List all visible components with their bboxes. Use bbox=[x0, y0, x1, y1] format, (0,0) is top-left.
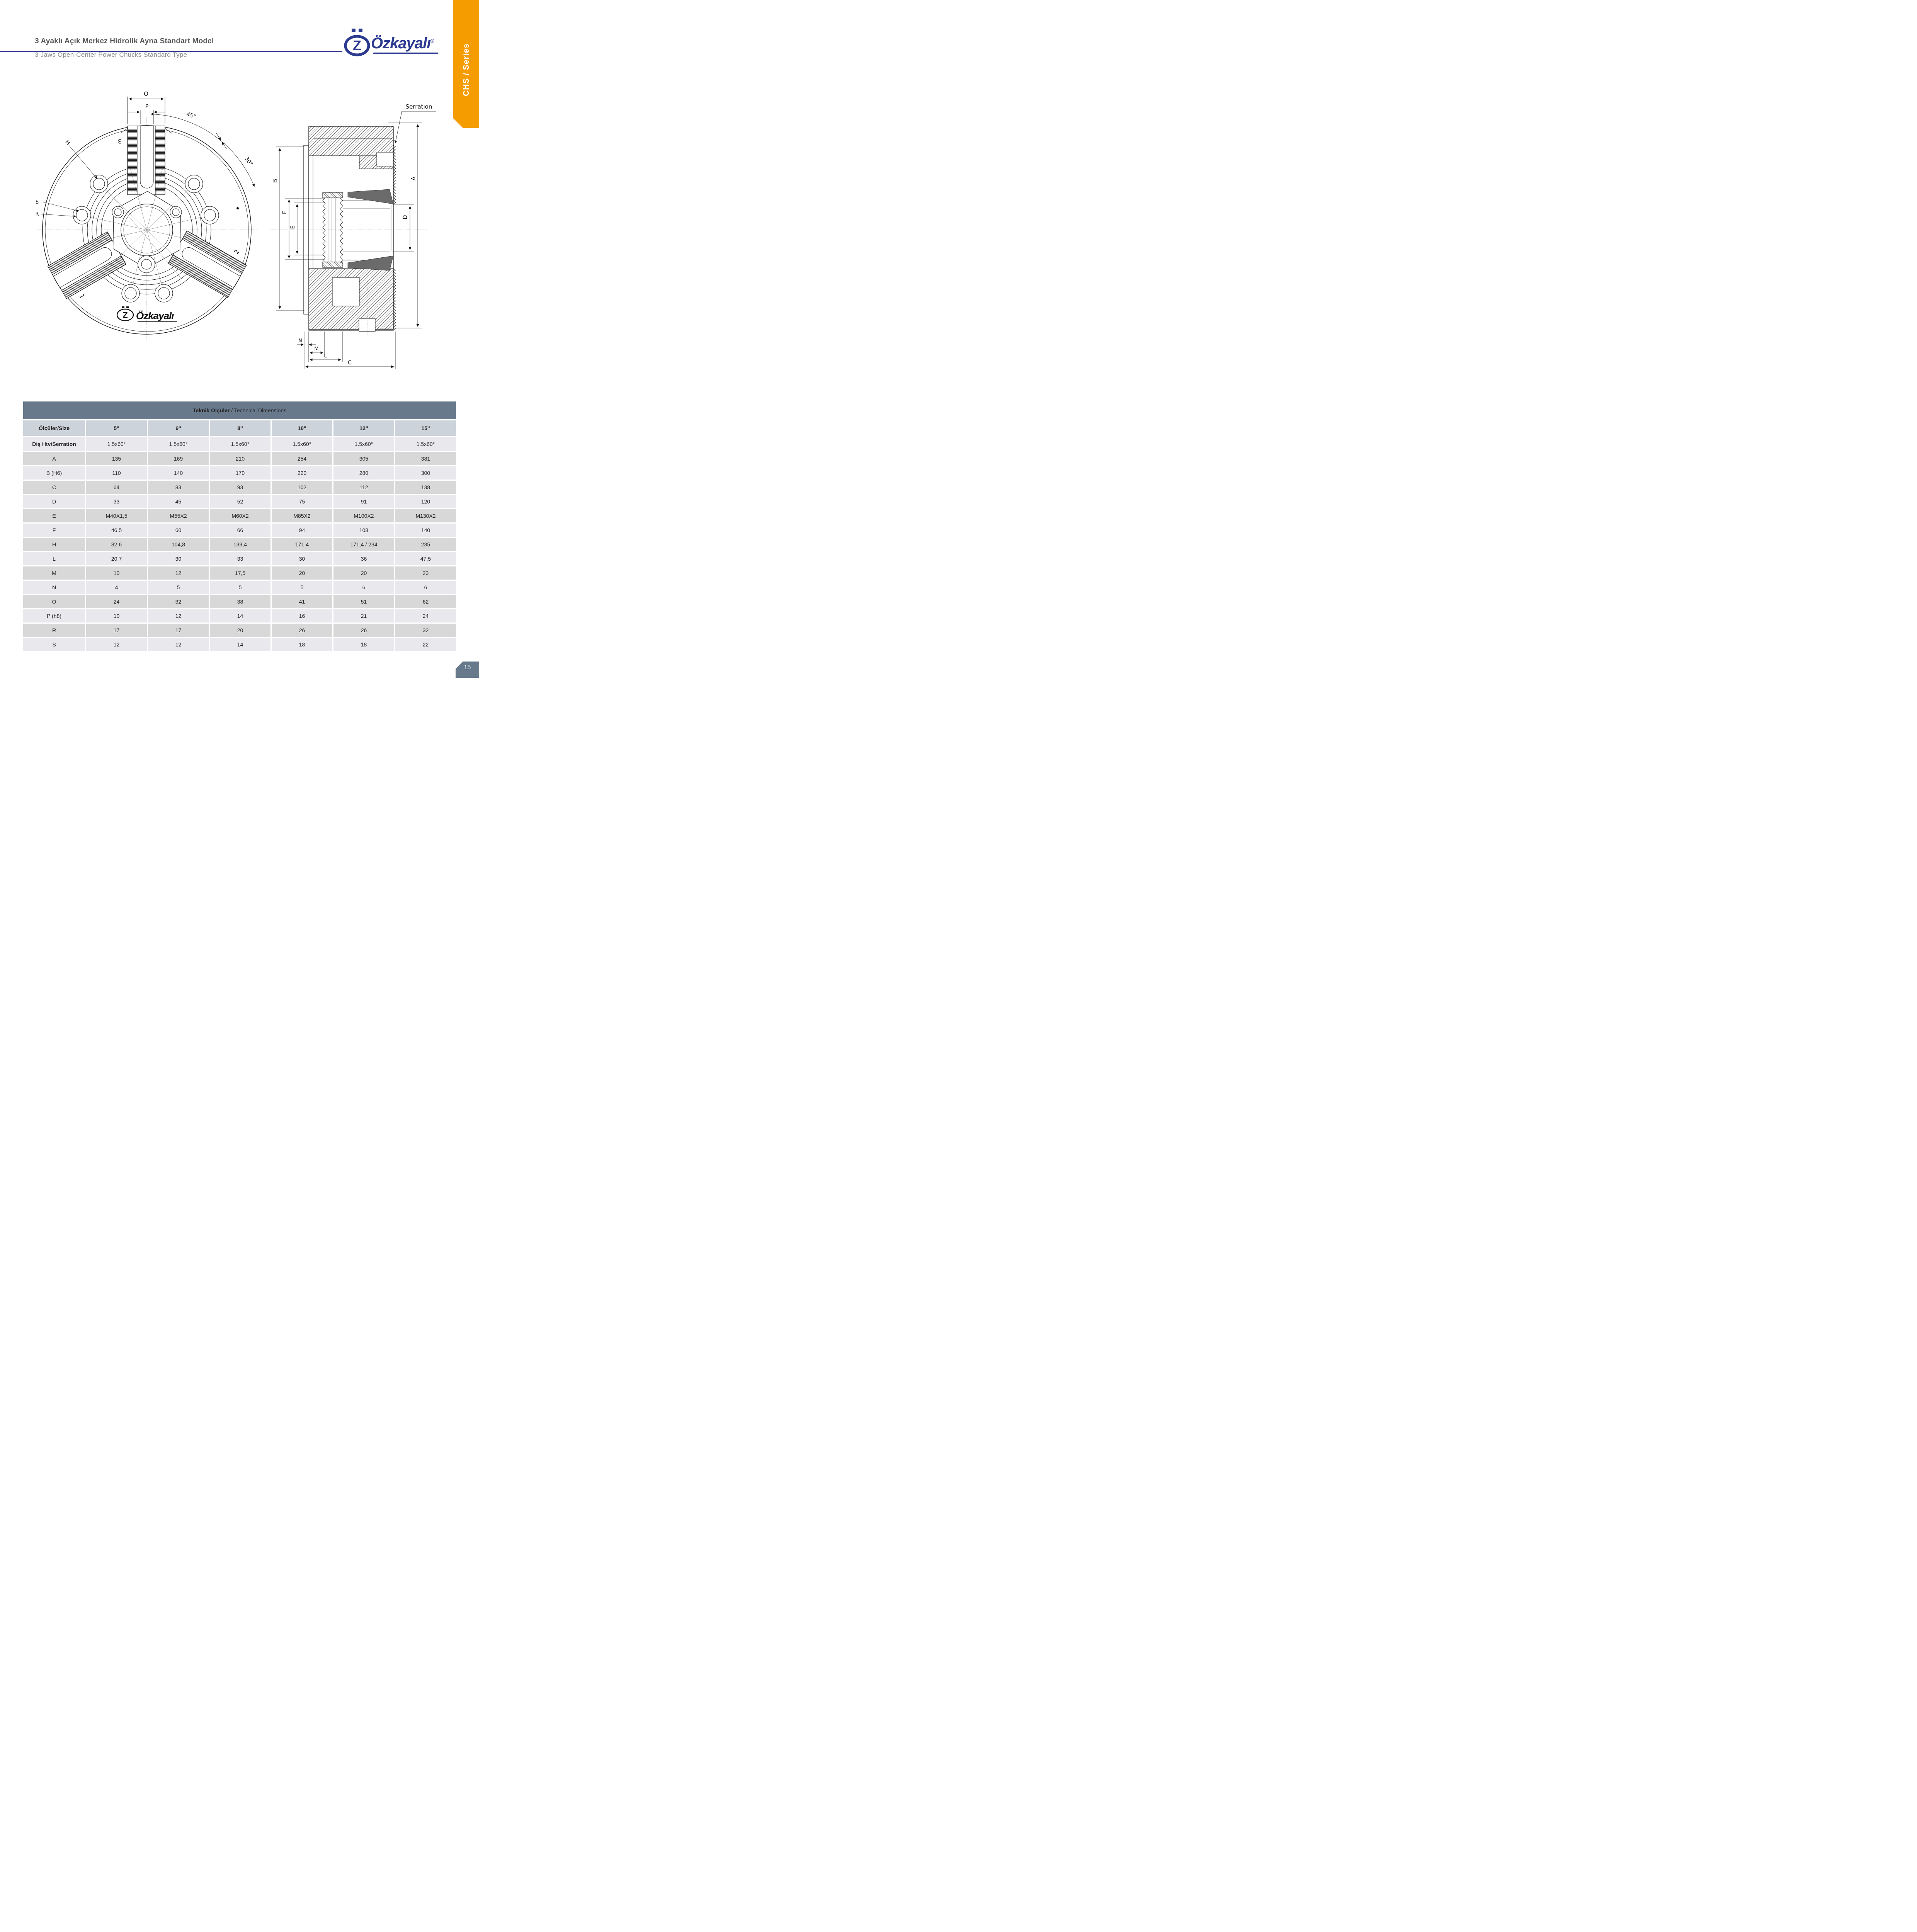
table-cell: 14 bbox=[210, 638, 270, 651]
table-title-row: Teknik Ölçüler / Technical Dimensions bbox=[23, 401, 456, 419]
table-cell: 26 bbox=[272, 624, 332, 637]
table-row: D3345527591120 bbox=[23, 495, 456, 508]
table-cell: 235 bbox=[395, 538, 456, 551]
label-P: P bbox=[145, 104, 148, 110]
table-cell: 210 bbox=[210, 452, 270, 465]
table-cell: 20 bbox=[333, 566, 394, 580]
row-label: Diş Htv/Serration bbox=[23, 437, 85, 451]
label-M: M bbox=[314, 346, 318, 352]
table-cell: 60 bbox=[148, 524, 209, 537]
table-cell: 1.5x60° bbox=[210, 437, 270, 451]
table-cell: 52 bbox=[210, 495, 270, 508]
label-E: E bbox=[290, 226, 296, 229]
size-col-header: 6'' bbox=[148, 420, 209, 436]
table-cell: 170 bbox=[210, 466, 270, 480]
body-top-hatch bbox=[309, 126, 393, 156]
label-45deg: 45° bbox=[185, 111, 197, 120]
table-cell: 102 bbox=[272, 481, 332, 494]
label-F: F bbox=[282, 211, 288, 214]
dimensions-table: Teknik Ölçüler / Technical DimensionsÖlç… bbox=[22, 400, 457, 652]
table-cell: 20 bbox=[272, 566, 332, 580]
piston-pocket bbox=[332, 277, 359, 306]
table-cell: 6 bbox=[395, 581, 456, 594]
table-cell: 93 bbox=[210, 481, 270, 494]
table-row: R171720262632 bbox=[23, 624, 456, 637]
label-D: D bbox=[402, 215, 408, 219]
table-title: Teknik Ölçüler / Technical Dimensions bbox=[23, 401, 456, 419]
table-cell: 104,8 bbox=[148, 538, 209, 551]
table-cell: 140 bbox=[395, 524, 456, 537]
label-O: O bbox=[144, 90, 148, 97]
table-row: EM40X1,5M55X2M60X2M85X2M100X2M130X2 bbox=[23, 509, 456, 522]
table-cell: 24 bbox=[86, 595, 147, 608]
table-cell: 138 bbox=[395, 481, 456, 494]
row-label: C bbox=[23, 481, 85, 494]
table-cell: 254 bbox=[272, 452, 332, 465]
table-cell: 12 bbox=[148, 566, 209, 580]
section-view: Serratıon B F E A D N M L C bbox=[270, 103, 436, 369]
table-cell: 133,4 bbox=[210, 538, 270, 551]
table-cell: 16 bbox=[272, 609, 332, 622]
table-cell: 24 bbox=[395, 609, 456, 622]
jaw-top bbox=[121, 126, 172, 195]
dim-D bbox=[393, 205, 414, 251]
backplate bbox=[304, 145, 309, 314]
table-row: M101217,5202023 bbox=[23, 566, 456, 580]
table-serration-row: Diş Htv/Serration1.5x60°1.5x60°1.5x60°1.… bbox=[23, 437, 456, 451]
table-cell: 38 bbox=[210, 595, 270, 608]
table-cell: 305 bbox=[333, 452, 394, 465]
table-cell: 75 bbox=[272, 495, 332, 508]
table-cell: 5 bbox=[272, 581, 332, 594]
table-cell: 12 bbox=[148, 609, 209, 622]
table-row: P (h8)101214162124 bbox=[23, 609, 456, 622]
table-row: N455566 bbox=[23, 581, 456, 594]
table-cell: 12 bbox=[86, 638, 147, 651]
size-col-header: 15'' bbox=[395, 420, 456, 436]
table-cell: 17 bbox=[86, 624, 147, 637]
table-cell: 64 bbox=[86, 481, 147, 494]
row-label: S bbox=[23, 638, 85, 651]
table-row: C648393102112138 bbox=[23, 481, 456, 494]
label-L: L bbox=[324, 353, 327, 359]
table-cell: 30 bbox=[272, 552, 332, 565]
table-cell: 220 bbox=[272, 466, 332, 480]
table-cell: 45 bbox=[148, 495, 209, 508]
table-cell: 14 bbox=[210, 609, 270, 622]
table-row: S121214181822 bbox=[23, 638, 456, 651]
table-title-rest: / Technical Dimensions bbox=[230, 407, 286, 413]
table-cell: 18 bbox=[272, 638, 332, 651]
table-cell: 120 bbox=[395, 495, 456, 508]
table-cell: 280 bbox=[333, 466, 394, 480]
table-cell: 10 bbox=[86, 566, 147, 580]
size-col-header: 5'' bbox=[86, 420, 147, 436]
table-row: B (H6)110140170220280300 bbox=[23, 466, 456, 480]
table-cell: M55X2 bbox=[148, 509, 209, 522]
table-cell: 17,5 bbox=[210, 566, 270, 580]
table-cell: 381 bbox=[395, 452, 456, 465]
row-label: N bbox=[23, 581, 85, 594]
index-dot bbox=[236, 207, 239, 209]
table-cell: 62 bbox=[395, 595, 456, 608]
table-cell: 51 bbox=[333, 595, 394, 608]
table-cell: 140 bbox=[148, 466, 209, 480]
catalog-page: 3 Ayaklı Açık Merkez Hidrolik Ayna Stand… bbox=[0, 0, 479, 678]
label-C: C bbox=[348, 360, 352, 366]
table-cell: M85X2 bbox=[272, 509, 332, 522]
table-cell: 6 bbox=[333, 581, 394, 594]
table-cell: 33 bbox=[86, 495, 147, 508]
stamp-text: Özkayalı bbox=[136, 310, 174, 321]
table-cell: 5 bbox=[148, 581, 209, 594]
table-cell: M130X2 bbox=[395, 509, 456, 522]
table-cell: 21 bbox=[333, 609, 394, 622]
label-jaw1: 1 bbox=[78, 293, 87, 300]
table-cell: 26 bbox=[333, 624, 394, 637]
table-cell: 83 bbox=[148, 481, 209, 494]
row-label: B (H6) bbox=[23, 466, 85, 480]
table-cell: 5 bbox=[210, 581, 270, 594]
stamp-logo: Z Özkayalı bbox=[117, 306, 177, 322]
size-col-header: 8'' bbox=[210, 420, 270, 436]
table-cell: 135 bbox=[86, 452, 147, 465]
row-label: P (h8) bbox=[23, 609, 85, 622]
table-cell: 12 bbox=[148, 638, 209, 651]
table-cell: M40X1,5 bbox=[86, 509, 147, 522]
label-B: B bbox=[272, 179, 279, 183]
table-cell: 108 bbox=[333, 524, 394, 537]
table-size-row: Ölçüler/Size5''6''8''10''12''15'' bbox=[23, 420, 456, 436]
table-cell: 20,7 bbox=[86, 552, 147, 565]
table-cell: 171,4 / 234 bbox=[333, 538, 394, 551]
table-cell: 41 bbox=[272, 595, 332, 608]
table-row: A135169210254305381 bbox=[23, 452, 456, 465]
row-label: E bbox=[23, 509, 85, 522]
label-N: N bbox=[298, 338, 302, 344]
serration-edge bbox=[393, 145, 396, 330]
row-label: L bbox=[23, 552, 85, 565]
table-row: L20,73033303647,5 bbox=[23, 552, 456, 565]
table-cell: 66 bbox=[210, 524, 270, 537]
row-label: H bbox=[23, 538, 85, 551]
row-label: R bbox=[23, 624, 85, 637]
row-label: O bbox=[23, 595, 85, 608]
table-cell: 32 bbox=[148, 595, 209, 608]
table-cell: 82,6 bbox=[86, 538, 147, 551]
table-cell: 46,5 bbox=[86, 524, 147, 537]
serration-leader bbox=[395, 111, 436, 143]
table-cell: 22 bbox=[395, 638, 456, 651]
table-cell: 300 bbox=[395, 466, 456, 480]
table-cell: 1.5x60° bbox=[148, 437, 209, 451]
row-label: F bbox=[23, 524, 85, 537]
table-cell: 17 bbox=[148, 624, 209, 637]
size-col-header: 12'' bbox=[333, 420, 394, 436]
table-cell: 1.5x60° bbox=[395, 437, 456, 451]
table-cell: 4 bbox=[86, 581, 147, 594]
table-cell: 1.5x60° bbox=[272, 437, 332, 451]
label-30deg: 30° bbox=[243, 156, 254, 167]
table-cell: M60X2 bbox=[210, 509, 270, 522]
table-cell: M100X2 bbox=[333, 509, 394, 522]
label-jaw3: 3 bbox=[118, 138, 122, 145]
table-cell: 1.5x60° bbox=[86, 437, 147, 451]
table-cell: 94 bbox=[272, 524, 332, 537]
table-title-bold: Teknik Ölçüler bbox=[193, 407, 230, 413]
table-cell: 23 bbox=[395, 566, 456, 580]
table-cell: 36 bbox=[333, 552, 394, 565]
table-cell: 91 bbox=[333, 495, 394, 508]
dims-bottom bbox=[297, 332, 395, 369]
label-jaw2: 2 bbox=[233, 248, 241, 255]
page-number: 15 bbox=[464, 664, 471, 671]
table-row: F46,5606694108140 bbox=[23, 524, 456, 537]
stamp-mark-letter: Z bbox=[122, 310, 128, 320]
table-cell: 110 bbox=[86, 466, 147, 480]
leader-lines bbox=[41, 146, 97, 216]
table-cell: 169 bbox=[148, 452, 209, 465]
table-cell: 33 bbox=[210, 552, 270, 565]
table-row: H82,6104,8133,4171,4171,4 / 234235 bbox=[23, 538, 456, 551]
table-cell: 10 bbox=[86, 609, 147, 622]
size-col-header: 10'' bbox=[272, 420, 332, 436]
table-cell: 171,4 bbox=[272, 538, 332, 551]
table-cell: 1.5x60° bbox=[333, 437, 394, 451]
label-A: A bbox=[410, 176, 417, 180]
row-label: D bbox=[23, 495, 85, 508]
row-label: Ölçüler/Size bbox=[23, 420, 85, 436]
row-label: M bbox=[23, 566, 85, 580]
angle-dims bbox=[151, 114, 255, 186]
label-H: H bbox=[64, 139, 71, 146]
table-row: O243238415162 bbox=[23, 595, 456, 608]
key-slot bbox=[377, 152, 393, 166]
table-cell: 18 bbox=[333, 638, 394, 651]
table-cell: 112 bbox=[333, 481, 394, 494]
table-cell: 30 bbox=[148, 552, 209, 565]
bore bbox=[309, 156, 393, 269]
label-S: S bbox=[36, 199, 39, 205]
label-serration: Serratıon bbox=[406, 103, 432, 110]
label-R: R bbox=[35, 211, 39, 217]
table-cell: 20 bbox=[210, 624, 270, 637]
dim-O bbox=[128, 97, 165, 124]
front-view: O P 45° 30° H S R 3 2 1 Z Özkayalı bbox=[35, 90, 258, 340]
table-cell: 47,5 bbox=[395, 552, 456, 565]
row-label: A bbox=[23, 452, 85, 465]
table-cell: 32 bbox=[395, 624, 456, 637]
